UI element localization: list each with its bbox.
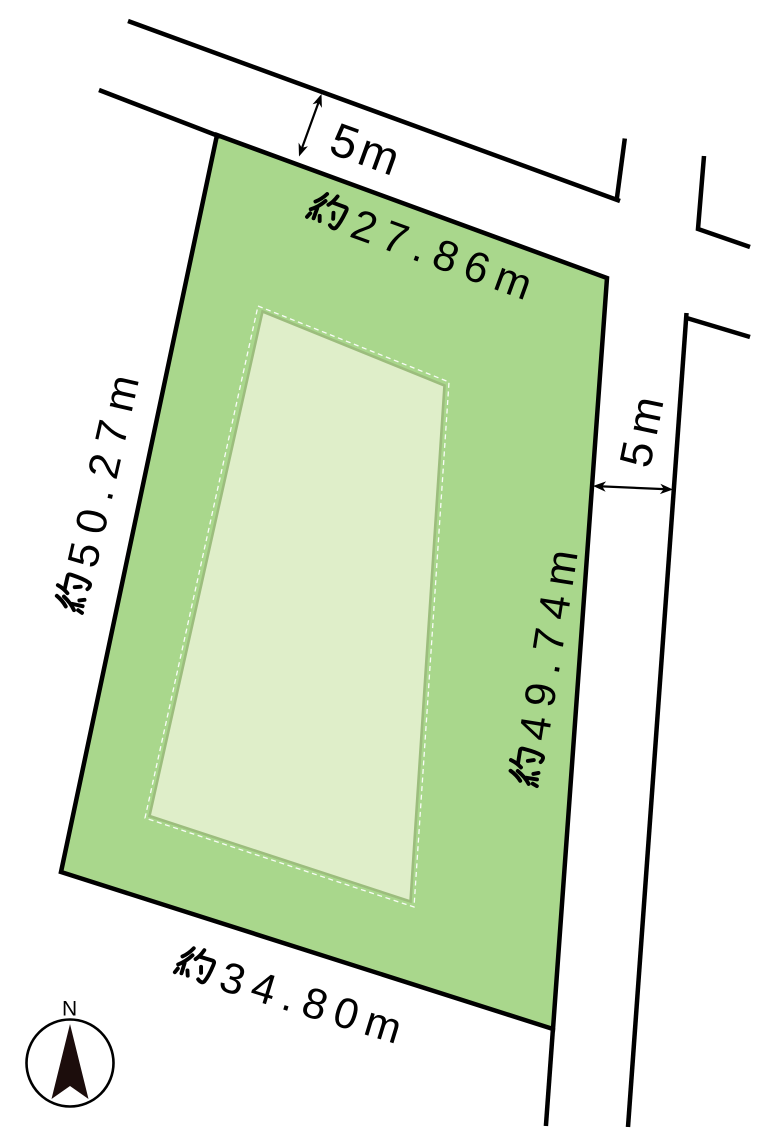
svg-text:N: N <box>62 998 77 1021</box>
